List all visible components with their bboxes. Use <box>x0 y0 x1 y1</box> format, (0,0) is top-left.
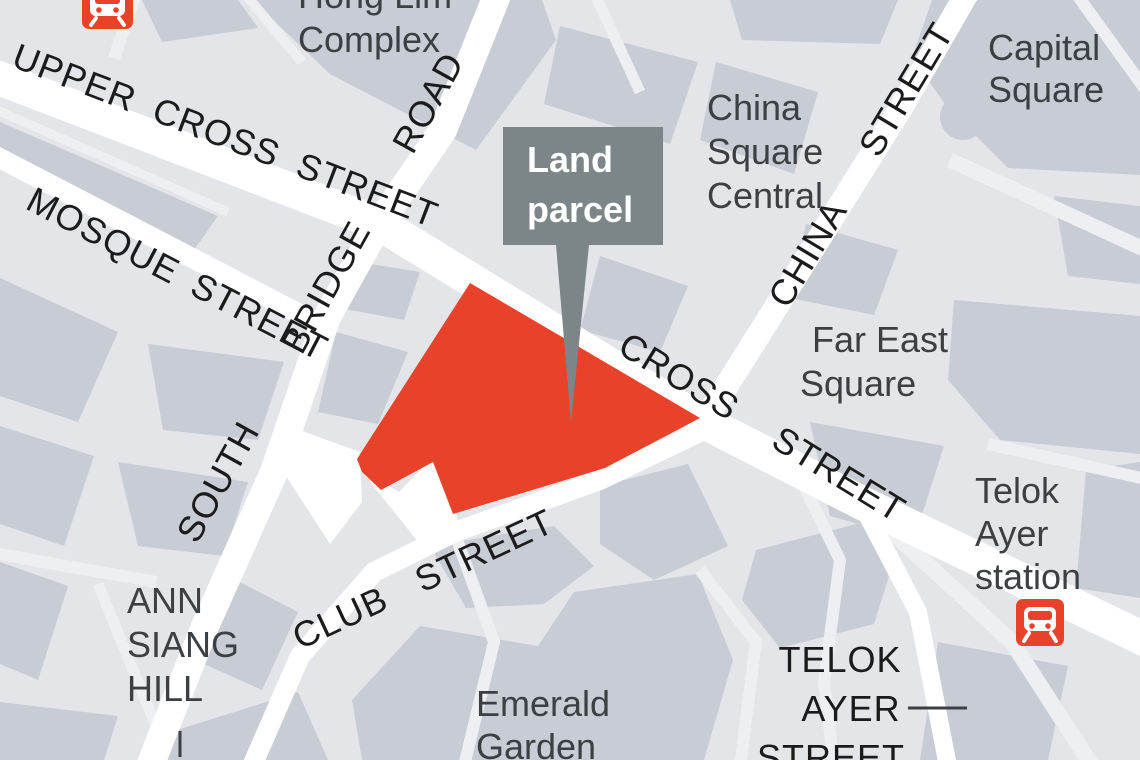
train-icon-light <box>96 7 102 13</box>
street-label-telok-ayer-line3: STREET <box>757 737 905 760</box>
place-label-capital-square-line2: Square <box>988 69 1104 110</box>
place-label-ann-siang-line1: ANN <box>127 580 203 621</box>
place-label-emerald-line2: Garden <box>476 726 596 760</box>
place-label-ann-siang-line3: HILL <box>127 668 203 709</box>
callout-text-line1: Land <box>527 139 613 180</box>
callout-text-line2: parcel <box>527 189 633 230</box>
place-label-far-east-line2: Square <box>800 363 916 404</box>
city-block <box>730 0 898 44</box>
train-icon-light <box>1029 623 1035 629</box>
place-label-hong-lim-line2: Complex <box>298 19 440 60</box>
street-label-telok-ayer-line1: TELOK <box>778 639 901 680</box>
place-label-far-east-line1: Far East <box>812 319 948 360</box>
city-block <box>1076 462 1140 598</box>
place-label-ann-siang-line2: SIANG <box>127 624 239 665</box>
train-station-icon-telok-ayer <box>1016 599 1064 646</box>
place-label-station-line3: station <box>975 556 1081 597</box>
train-icon-light <box>1045 623 1051 629</box>
place-label-hong-lim-line1: Hong Lim <box>298 0 452 16</box>
train-icon-light <box>113 7 119 13</box>
place-label-china-square-line2: Square <box>707 131 823 172</box>
train-station-icon <box>82 0 133 29</box>
locator-map: Land parcel UPPER CROSS STREET MOSQUE ST… <box>0 0 1140 760</box>
train-icon-window <box>1028 611 1052 620</box>
place-label-china-square-line3: Central <box>707 175 823 216</box>
train-icon-window <box>95 0 120 4</box>
place-label-china-square-line1: China <box>707 87 802 128</box>
map-canvas: Land parcel UPPER CROSS STREET MOSQUE ST… <box>0 0 1140 760</box>
place-label-capital-square-line1: Capital <box>988 27 1100 68</box>
place-label-station-line1: Telok <box>975 470 1060 511</box>
place-label-station-line2: Ayer <box>975 513 1048 554</box>
city-block-roundabout <box>940 94 986 140</box>
street-label-telok-ayer-line2: AYER <box>801 688 900 729</box>
place-label-emerald-line1: Emerald <box>476 683 610 724</box>
